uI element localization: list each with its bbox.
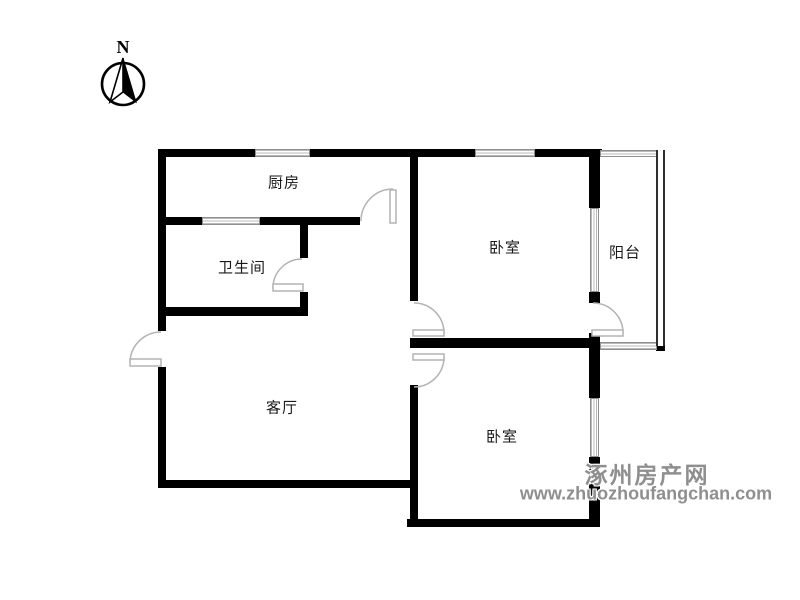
room-label-bathroom: 卫生间 (218, 257, 266, 278)
entry-door-leaf (130, 359, 161, 366)
room-label-balcony: 阳台 (609, 242, 641, 263)
window-kitchen-bathroom (202, 217, 260, 225)
wall-left-upper (158, 149, 166, 331)
window-bedroom1-balcony (590, 208, 599, 292)
compass: N (95, 38, 155, 113)
wall-right-c (589, 333, 600, 398)
window-bedroom2-east (590, 398, 599, 457)
bedroom1-door-leaf (413, 330, 444, 336)
window-kitchen-north (255, 149, 310, 157)
wall-bathroom-bottom (158, 307, 308, 316)
entry-door-arc (130, 332, 161, 363)
bathroom-door-arc (273, 259, 302, 288)
room-label-kitchen: 厨房 (268, 172, 300, 193)
floorplan-canvas: N (0, 0, 800, 600)
bathroom-door-leaf (273, 284, 303, 291)
wall-living-bottom (158, 480, 418, 488)
wall-top (158, 149, 602, 157)
window-balcony-bottom (600, 342, 657, 350)
bedroom2-door-leaf (413, 354, 444, 360)
window-balcony-top (600, 150, 657, 157)
balcony-rail (656, 150, 665, 346)
wall-right-b (589, 292, 600, 303)
bedroom2-door-arc (414, 357, 444, 387)
wall-right-a (589, 149, 600, 208)
wall-bathroom-right-upper (300, 217, 308, 258)
wall-middle-lower (410, 385, 418, 525)
compass-icon (95, 54, 155, 110)
watermark-site-url: www.zhuozhoufangchan.com (520, 484, 772, 505)
room-label-bedroom-north: 卧室 (489, 237, 521, 258)
kitchen-door-leaf (390, 190, 396, 223)
balcony-door-arc (593, 303, 623, 333)
room-label-living-room: 客厅 (266, 397, 298, 418)
kitchen-door-arc (361, 189, 393, 221)
room-label-bedroom-south: 卧室 (486, 426, 518, 447)
bedroom1-door-arc (414, 303, 444, 333)
wall-bedroom-divider (410, 338, 600, 348)
wall-bedroom2-bottom (407, 519, 600, 527)
wall-left-lower (158, 367, 166, 488)
wall-middle-upper (410, 149, 418, 301)
window-bedroom1-north (475, 149, 535, 157)
